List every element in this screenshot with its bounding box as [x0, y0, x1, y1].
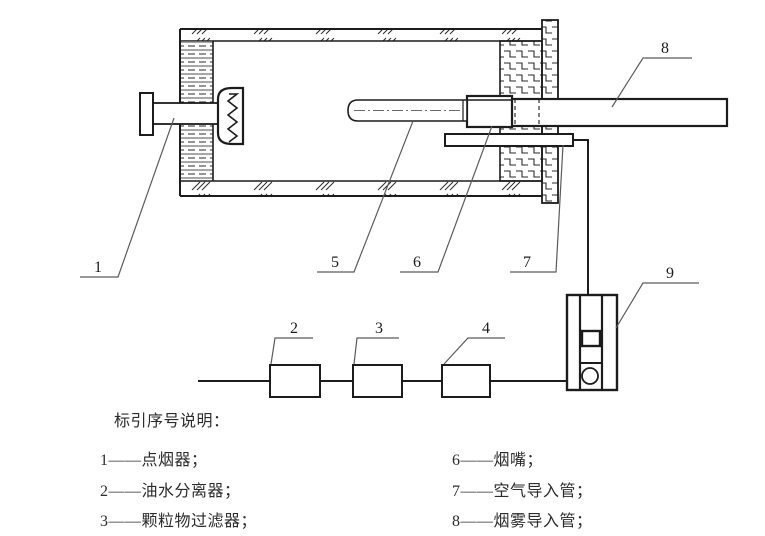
- leader-2: [271, 338, 313, 364]
- filter-train: [198, 365, 567, 397]
- leader-3: [354, 338, 399, 364]
- callout-4: 4: [482, 320, 490, 337]
- air-downpipe: [573, 140, 588, 295]
- callout-6: 6: [413, 254, 421, 271]
- callout-9: 9: [666, 265, 674, 282]
- air-plate: [445, 134, 573, 146]
- legend-title: 标引序号说明：: [114, 407, 230, 431]
- callout-5: 5: [331, 254, 339, 271]
- lighter-rod: [153, 103, 218, 124]
- leader-4: [444, 338, 505, 364]
- chamber-top-wall: [180, 29, 542, 41]
- lighter-knob: [140, 93, 153, 135]
- pump-unit: [567, 295, 617, 390]
- figure-canvas: 1 2 3 4 5 6 7 8 9 标引序号说明： 1——点烟器； 2——油水分…: [0, 0, 765, 536]
- callout-2: 2: [290, 320, 298, 337]
- leader-1: [80, 118, 174, 277]
- callout-7: 7: [523, 254, 531, 271]
- legend-item-7: 7——空气导入管；: [452, 477, 593, 501]
- pump-valve-square: [582, 331, 600, 346]
- legend-item-3: 3——颗粒物过滤器；: [100, 507, 257, 531]
- chamber-bottom-wall: [180, 181, 542, 196]
- pump-rotor-circle: [582, 368, 598, 384]
- callout-1: 1: [94, 259, 102, 276]
- legend-item-1: 1——点烟器；: [100, 446, 208, 470]
- legend-item-6: 6——烟嘴；: [452, 446, 543, 470]
- leader-6: [400, 126, 492, 272]
- cigarette: [348, 100, 467, 121]
- legend-item-2: 2——油水分离器；: [100, 477, 241, 501]
- smoke-tube-body: [505, 99, 727, 126]
- leader-9: [616, 283, 699, 328]
- smoke-inlet-tube: [505, 99, 727, 126]
- particulate-filter-box: [353, 365, 402, 397]
- oil-water-separator-box: [270, 365, 320, 397]
- callout-3: 3: [375, 320, 383, 337]
- filter-box-4: [442, 365, 490, 397]
- callout-8: 8: [661, 40, 669, 57]
- legend-item-8: 8——烟雾导入管；: [452, 507, 593, 531]
